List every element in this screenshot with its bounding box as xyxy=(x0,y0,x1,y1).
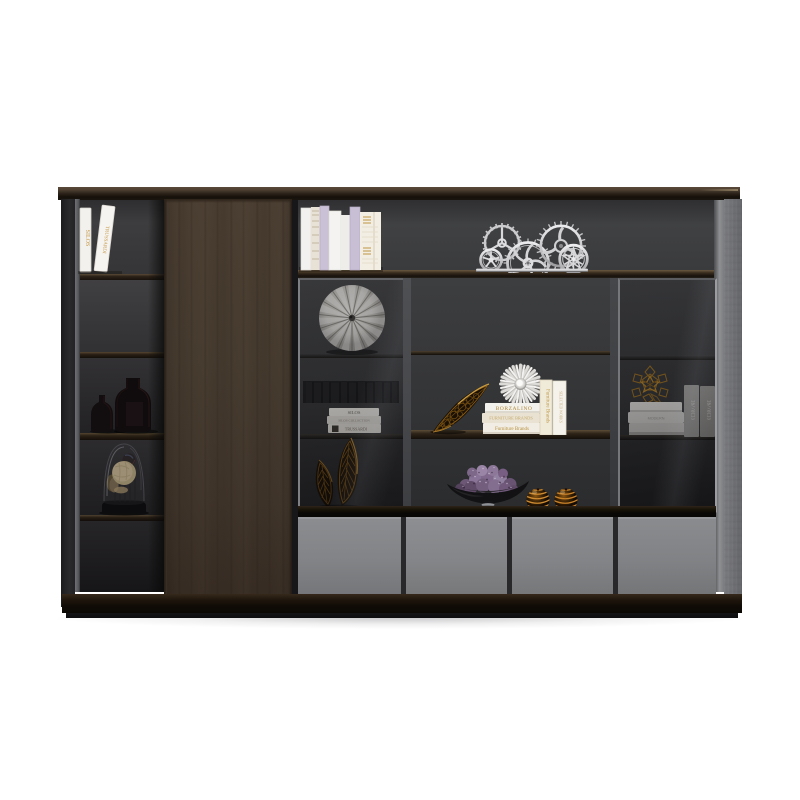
svg-text:Furniture Brands: Furniture Brands xyxy=(495,427,529,432)
svg-text:SILOS: SILOS xyxy=(84,230,90,247)
svg-text:FURNITURE BRANDS: FURNITURE BRANDS xyxy=(489,415,533,420)
svg-text:BORZALINO: BORZALINO xyxy=(496,406,533,412)
svg-text:SELECTED WORKS: SELECTED WORKS xyxy=(559,391,563,423)
svg-text:Furniture Brands: Furniture Brands xyxy=(544,389,549,423)
